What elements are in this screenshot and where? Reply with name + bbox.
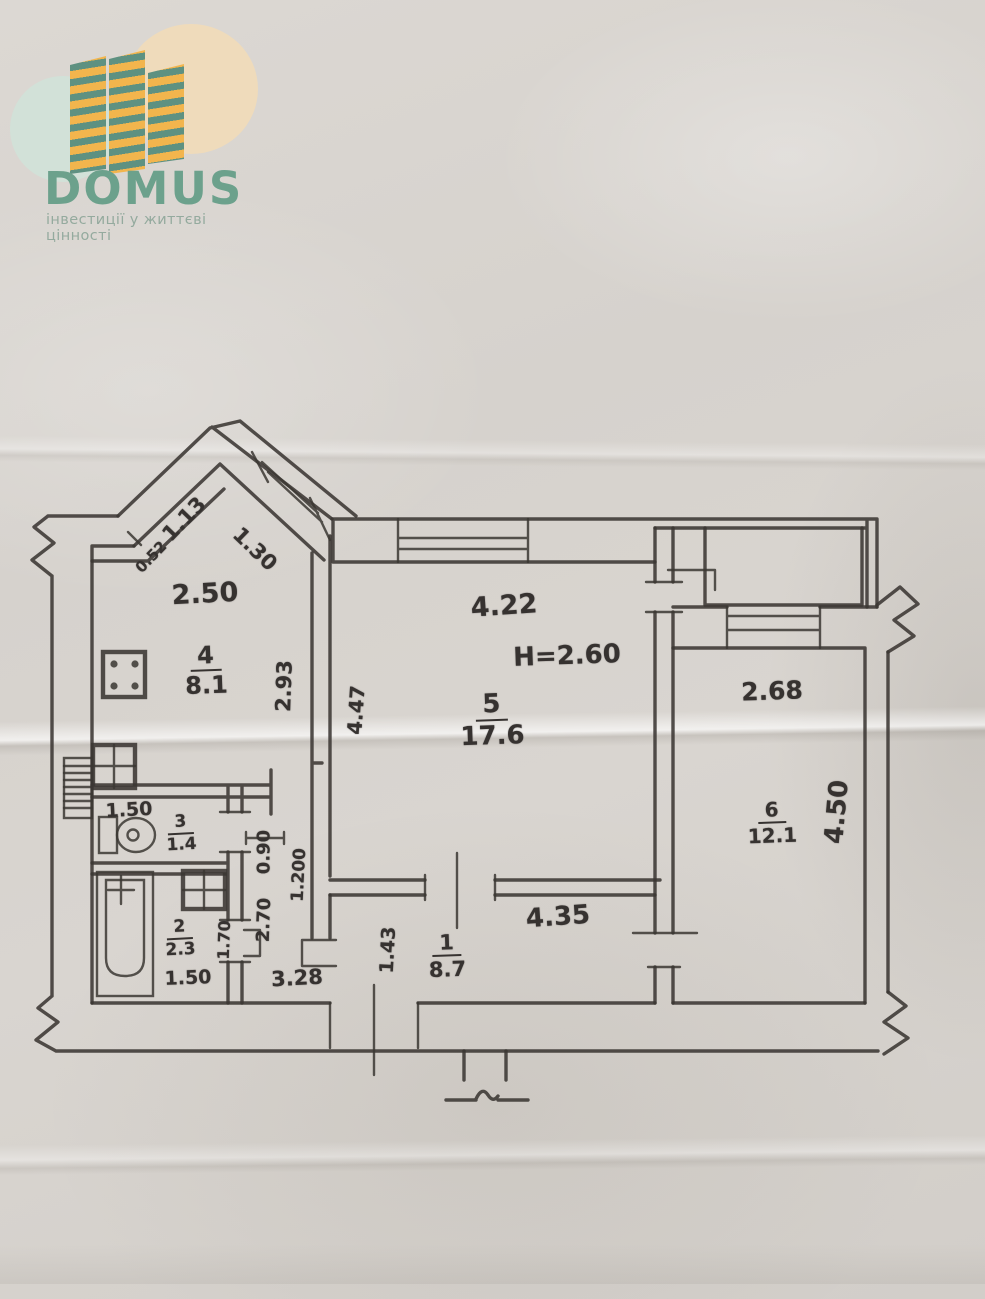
shaft-rectangle: [705, 528, 862, 605]
window-room6: [727, 607, 820, 648]
door-room6: [633, 933, 697, 967]
kitchen-sink-icon: [93, 745, 135, 788]
entrance-bay-walls: [92, 421, 356, 561]
interior-walls: [92, 528, 862, 1003]
toilet-icon: [99, 817, 155, 853]
dimension-leaders: [128, 532, 457, 1075]
door-room5-corridor: [425, 875, 495, 900]
bathtub-icon: [97, 872, 153, 996]
window-symbols: [252, 452, 820, 648]
window-room5: [398, 519, 528, 562]
stove-icon: [103, 652, 145, 697]
door-openings-and-ticks: [128, 532, 715, 1075]
radiator-icon: [64, 758, 92, 818]
bath-sink-icon: [183, 871, 225, 909]
floor-plan-drawing: [0, 0, 985, 1299]
wall-break-top-right: [877, 587, 918, 652]
door-hall-corridor: [302, 940, 336, 966]
entry-porch: [446, 1051, 528, 1100]
exterior-walls: [32, 421, 918, 1054]
wall-break-bottom-right: [884, 992, 908, 1054]
door-bath: [220, 920, 260, 962]
